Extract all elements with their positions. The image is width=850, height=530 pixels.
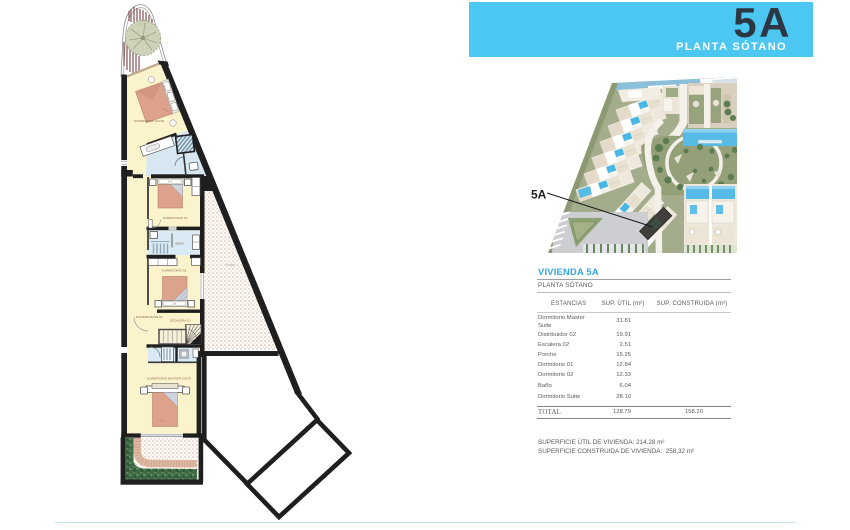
svg-text:5A: 5A xyxy=(531,188,547,202)
svg-text:DORMITORIO MASTER SUITE: DORMITORIO MASTER SUITE xyxy=(147,377,191,381)
svg-text:DISTRIBUIDOR 02: DISTRIBUIDOR 02 xyxy=(136,315,163,319)
svg-text:DORMITORIO SUITE: DORMITORIO SUITE xyxy=(134,119,164,123)
svg-text:Porche: Porche xyxy=(225,263,235,267)
svg-text:DORMITORIO 02: DORMITORIO 02 xyxy=(163,216,188,220)
svg-text:ESCALERA 02: ESCALERA 02 xyxy=(170,319,190,323)
svg-text:DORMITORIO 01: DORMITORIO 01 xyxy=(162,269,187,273)
svg-text:BAÑO: BAÑO xyxy=(176,241,185,246)
